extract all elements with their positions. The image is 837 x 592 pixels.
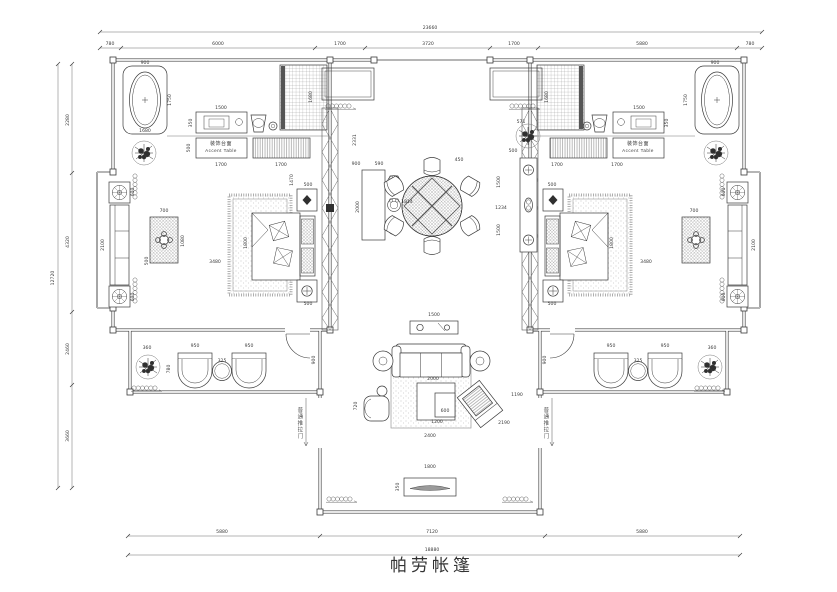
round-table xyxy=(213,362,232,381)
toilet xyxy=(251,115,266,132)
central-hall xyxy=(322,68,542,330)
dimension-text: 1500 xyxy=(633,105,645,111)
vanity xyxy=(196,112,247,133)
right-bedroom xyxy=(543,189,631,302)
dimension-text: 900 xyxy=(542,356,548,365)
door-swing xyxy=(550,334,574,358)
dimension-text: 500 xyxy=(509,148,518,154)
dimension-text: 325 xyxy=(634,358,643,364)
dimension-text: 500 xyxy=(144,257,150,266)
dimension-text: 500 xyxy=(304,301,313,307)
floor-plan-canvas: 2366078060001700372017005880780588071205… xyxy=(0,0,837,592)
dimension-text: 1700 xyxy=(611,162,623,168)
accent-table-label-en: Accent Table xyxy=(612,148,664,153)
dimension-text: 350 xyxy=(188,119,194,128)
plan-title: 帕劳帐篷 xyxy=(332,556,532,576)
dimension-text: 700 xyxy=(160,208,169,214)
sliding-door-label-right: 普通推拉门 xyxy=(542,400,548,446)
shower xyxy=(280,65,327,130)
dimension-text: 7120 xyxy=(426,529,438,535)
dimension-text: 1500 xyxy=(496,176,502,188)
dimension-text: 780 xyxy=(746,41,755,47)
dimension-text: 590 xyxy=(375,161,384,167)
dimension-text: 2460 xyxy=(65,343,71,355)
dimension-text: 900 xyxy=(711,60,720,66)
dimension-text: 2100 xyxy=(100,239,106,251)
dimension-text: 950 xyxy=(607,343,616,349)
bathtub xyxy=(695,66,739,134)
dimension-text: 325 xyxy=(218,358,227,364)
deck-table xyxy=(150,217,178,263)
dimension-text: 5880 xyxy=(636,41,648,47)
dimension-text: 1080 xyxy=(180,235,186,247)
armchair xyxy=(364,386,389,421)
accent-table-label-right: 装饰台面 Accent Table xyxy=(612,142,664,153)
dimension-text: 1500 xyxy=(215,105,227,111)
dimension-text: 1814 xyxy=(401,199,413,205)
nightstand xyxy=(297,280,317,302)
bench xyxy=(550,138,607,158)
dimension-text: 1700 xyxy=(215,162,227,168)
dimension-text: 600 xyxy=(130,188,136,197)
dimension-text: 2280 xyxy=(65,114,71,126)
dimension-text: 2400 xyxy=(424,433,436,439)
living-sofa xyxy=(392,344,470,377)
dimension-text: 1234 xyxy=(495,205,507,211)
exterior-walls xyxy=(97,60,760,512)
right-deck xyxy=(682,174,748,307)
dimension-text: 1680 xyxy=(308,91,314,103)
dimension-text: 1680 xyxy=(139,128,151,134)
dimension-text: 1470 xyxy=(289,174,295,186)
dimension-text: 571 xyxy=(517,119,526,125)
toilet xyxy=(592,115,607,132)
dimension-text: 720 xyxy=(353,402,359,411)
sofa-console xyxy=(410,321,458,334)
door-swing xyxy=(286,334,310,358)
bed xyxy=(545,213,608,280)
dimension-text: 350 xyxy=(395,483,401,492)
dimension-text: 600 xyxy=(130,293,136,302)
dimension-text: 12720 xyxy=(50,271,56,286)
dimension-text: 780 xyxy=(166,365,172,374)
dimension-text: 360 xyxy=(143,345,152,351)
accent-table-label-en: Accent Table xyxy=(195,148,247,153)
dimension-text: 450 xyxy=(455,157,464,163)
dimension-text: 500 xyxy=(548,182,557,188)
dimension-text: 18880 xyxy=(425,547,440,553)
nightstand xyxy=(297,189,317,211)
dimension-text: 350 xyxy=(664,119,670,128)
hall-console-right xyxy=(520,158,537,252)
dimension-text: 900 xyxy=(311,356,317,365)
round-table xyxy=(629,362,648,381)
entry-porch xyxy=(490,68,542,100)
dimension-text: 1700 xyxy=(551,162,563,168)
dimension-text: 700 xyxy=(690,208,699,214)
wall-piers xyxy=(110,57,747,515)
dimension-text: 5880 xyxy=(636,529,648,535)
dimension-text: 500 xyxy=(186,144,192,153)
dimension-text: 1680 xyxy=(544,91,550,103)
dimension-text: 2100 xyxy=(751,239,757,251)
dimension-text: 950 xyxy=(191,343,200,349)
deck-table xyxy=(682,217,710,263)
deck-bench xyxy=(110,205,129,285)
dimension-annotations: 2366078060001700372017005880780588071205… xyxy=(50,25,757,553)
dimension-text: 2331 xyxy=(352,134,358,146)
wash-basin xyxy=(269,122,277,130)
bathtub xyxy=(123,66,167,134)
dimension-text: 600 xyxy=(441,408,450,414)
lounge-room-right xyxy=(550,334,725,446)
dimension-text: 950 xyxy=(245,343,254,349)
dimension-text: 1700 xyxy=(508,41,520,47)
dimension-text: 500 xyxy=(304,182,313,188)
dimension-text: 1750 xyxy=(683,94,689,106)
dimension-text: 600 xyxy=(721,188,727,197)
deck-bench xyxy=(728,205,747,285)
nightstand xyxy=(543,280,563,302)
dimension-text: 1800 xyxy=(609,237,615,249)
dimension-text: 2000 xyxy=(427,376,439,382)
potted-plant xyxy=(132,141,156,165)
dimension-text: 1750 xyxy=(167,94,173,106)
bench xyxy=(253,138,310,158)
dimension-text: 1800 xyxy=(243,237,249,249)
dimension-text: 5880 xyxy=(216,529,228,535)
dimension-text: 2000 xyxy=(355,201,361,213)
dimension-text: 1190 xyxy=(511,392,523,398)
left-bedroom xyxy=(229,189,317,302)
dimension-text: 3720 xyxy=(422,41,434,47)
lounge-room-left xyxy=(131,334,310,446)
potted-plant xyxy=(704,141,728,165)
dimension-text: 1800 xyxy=(424,464,436,470)
dimension-text: 900 xyxy=(141,60,150,66)
vanity xyxy=(613,112,664,133)
dimension-text: 23660 xyxy=(423,25,438,31)
dimension-text: 600 xyxy=(721,293,727,302)
dimension-text: 900 xyxy=(352,161,361,167)
accent-table-label-left: 装饰台面 Accent Table xyxy=(195,142,247,153)
dimension-text: 6000 xyxy=(212,41,224,47)
bed xyxy=(252,213,315,280)
nightstand xyxy=(543,189,563,211)
dimension-text: 3480 xyxy=(209,259,221,265)
dimension-text: 4320 xyxy=(65,236,71,248)
dimension-text: 3480 xyxy=(640,259,652,265)
dimension-text: 2190 xyxy=(498,420,510,426)
dimension-text: 3660 xyxy=(65,430,71,442)
living-area xyxy=(364,321,503,428)
dimension-text: 1500 xyxy=(428,312,440,318)
dimension-text: 1500 xyxy=(496,224,502,236)
left-deck xyxy=(109,174,178,307)
dimension-text: 1200 xyxy=(431,419,443,425)
dimension-text: 360 xyxy=(708,345,717,351)
floor-plan-svg: 2366078060001700372017005880780588071205… xyxy=(0,0,837,592)
coffee-table xyxy=(417,383,455,420)
dimension-text: 1700 xyxy=(334,41,346,47)
dimension-text: 780 xyxy=(106,41,115,47)
tv-zone xyxy=(326,478,533,502)
sliding-door-label-left: 普通推拉门 xyxy=(296,400,302,446)
dimension-text: 950 xyxy=(661,343,670,349)
dimension-text: 1700 xyxy=(275,162,287,168)
dimension-text: 500 xyxy=(548,301,557,307)
